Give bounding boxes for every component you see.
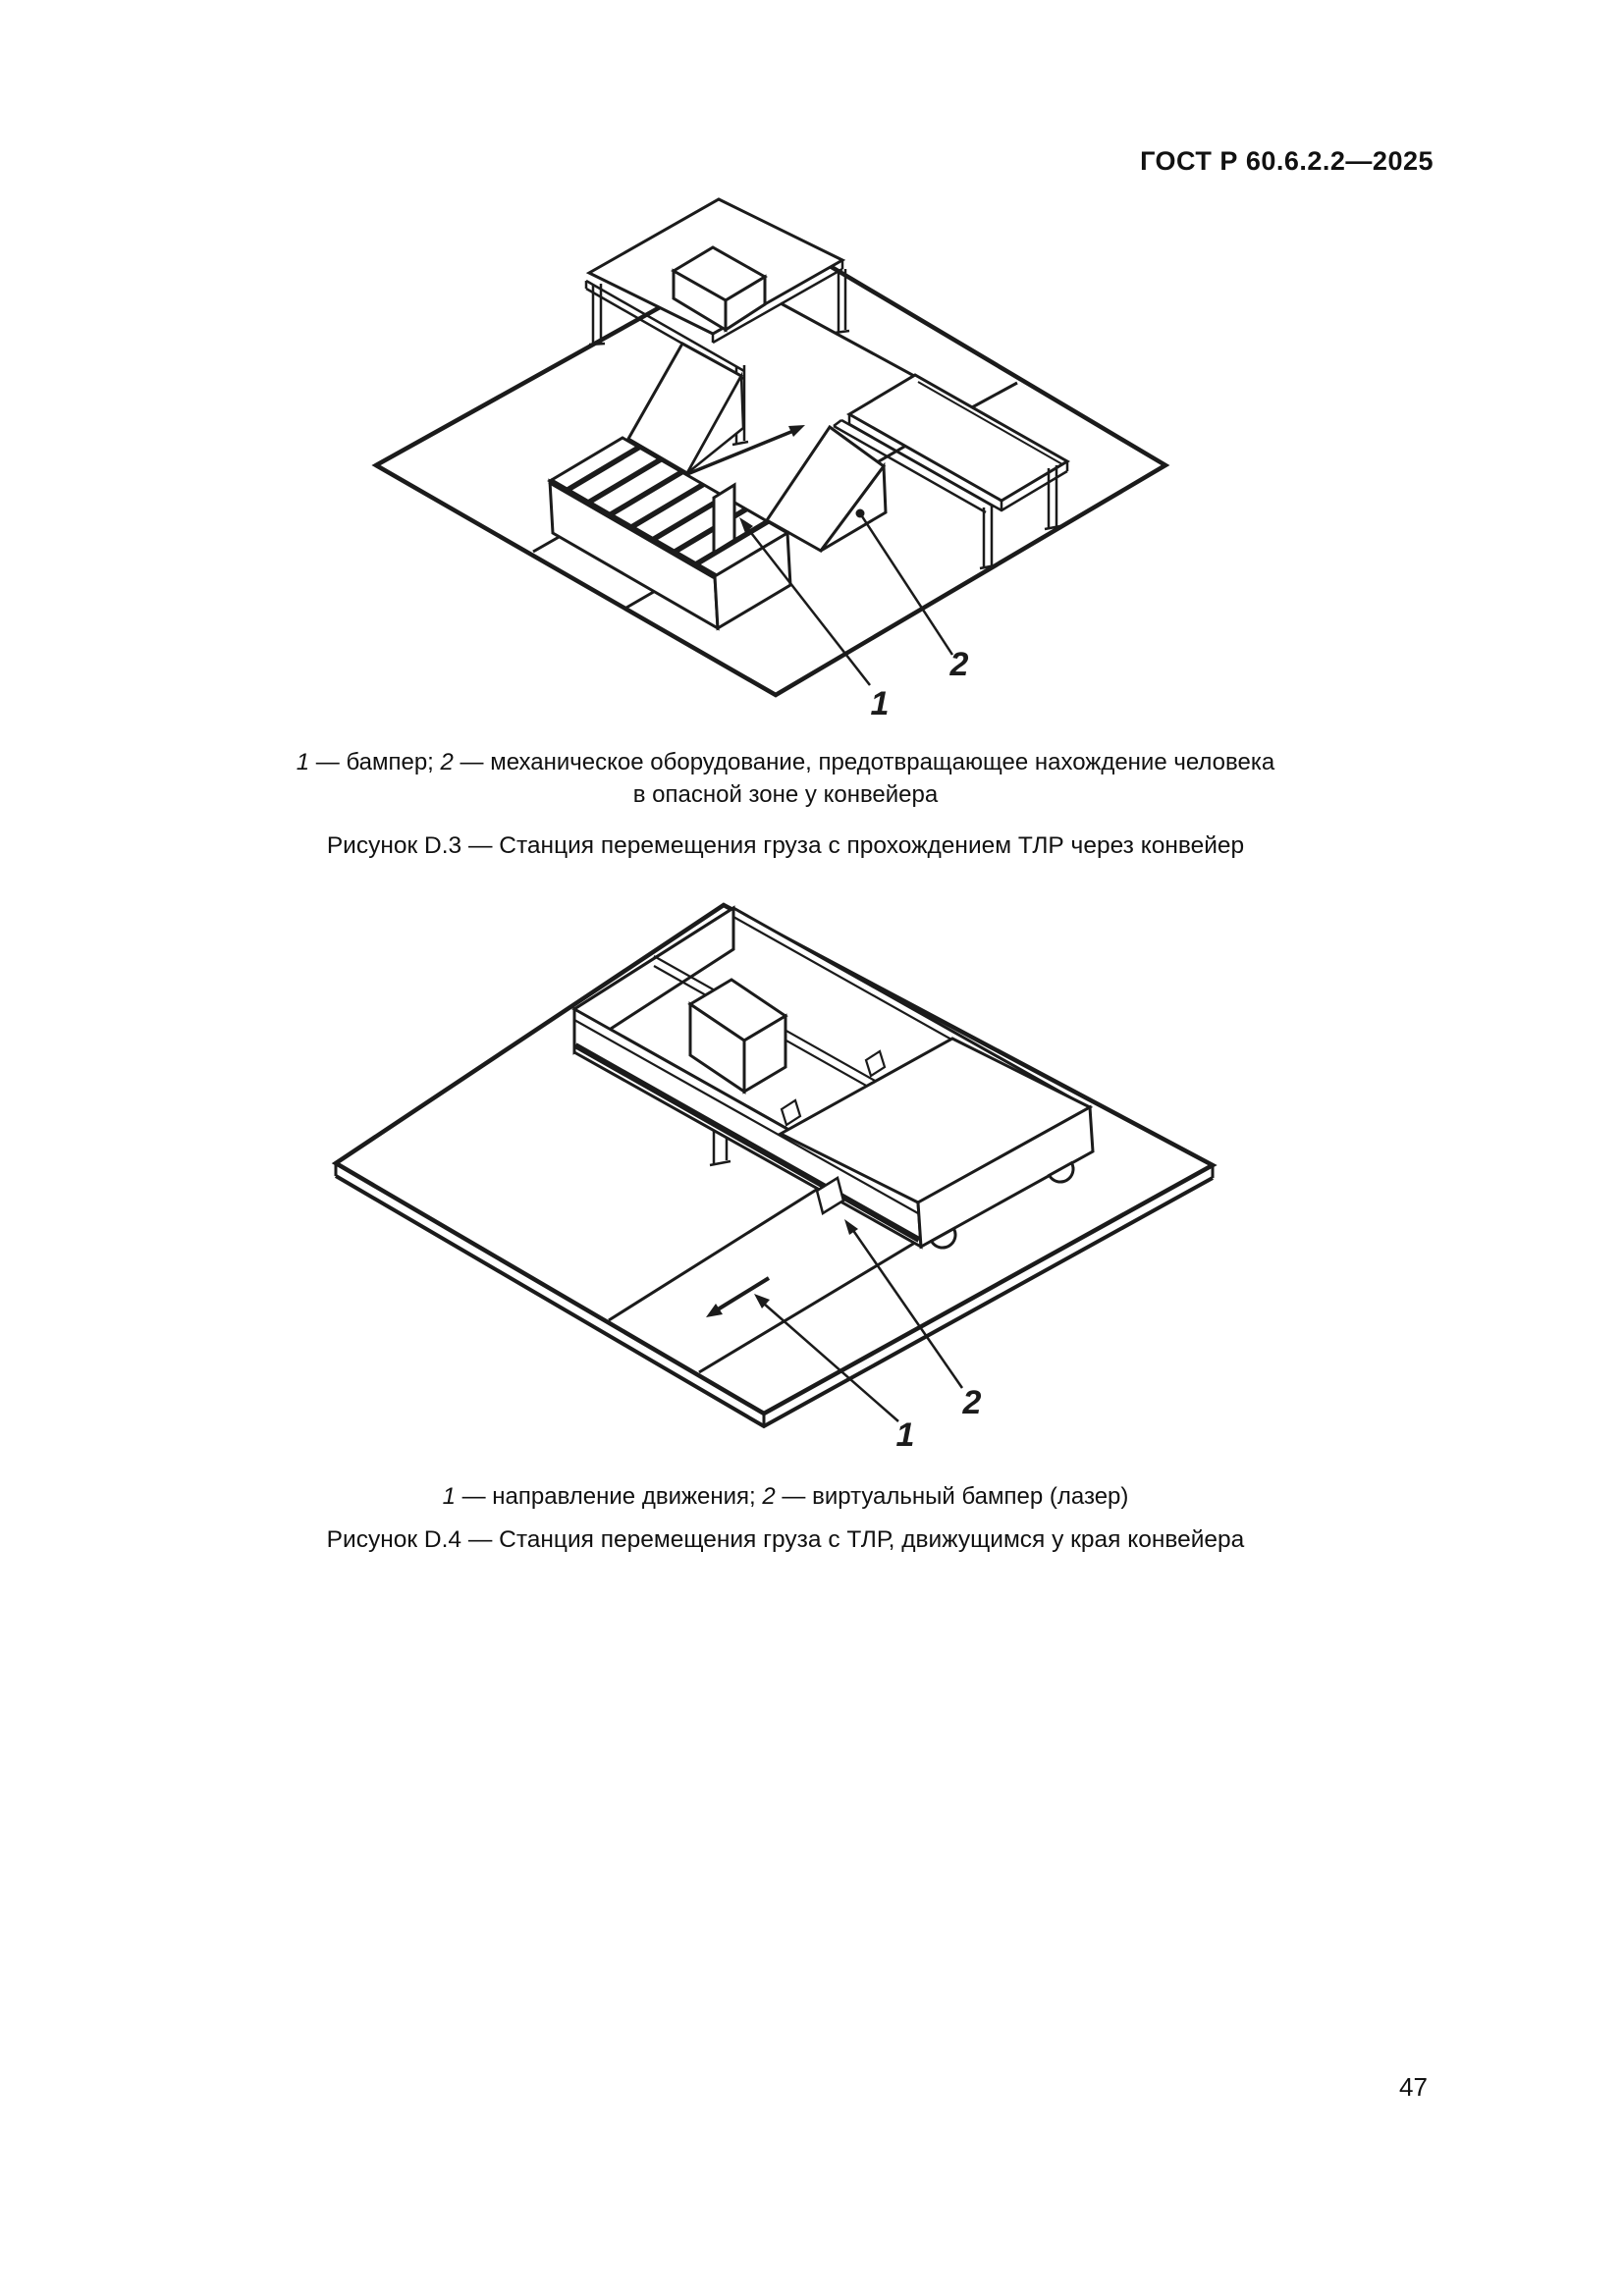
figure-d3-drawing: 1 2 xyxy=(324,187,1218,741)
page-header-title: ГОСТ Р 60.6.2.2—2025 xyxy=(982,146,1434,177)
figure-d4-caption: Рисунок D.4 — Станция перемещения груза … xyxy=(245,1526,1326,1554)
figure-d4-drawing: 1 2 xyxy=(314,883,1237,1458)
figure-d3-caption: Рисунок D.3 — Станция перемещения груза … xyxy=(245,832,1326,860)
bumper-plate xyxy=(714,485,734,553)
document-page: ГОСТ Р 60.6.2.2—2025 xyxy=(0,0,1624,2296)
page-number: 47 xyxy=(1399,2072,1428,2103)
figure-d3-legend-line2: в опасной зоне у конвейера xyxy=(295,781,1276,808)
figure-d3-legend-line1: 1 — бампер; 2 — механическое оборудовани… xyxy=(295,749,1276,775)
callout-1: 1 xyxy=(871,685,890,722)
figure-d4-legend-line1: 1 — направление движения; 2 — виртуальны… xyxy=(295,1483,1276,1510)
callout-2: 2 xyxy=(962,1384,982,1421)
callout-2: 2 xyxy=(949,646,969,683)
callout-1: 1 xyxy=(896,1416,915,1454)
